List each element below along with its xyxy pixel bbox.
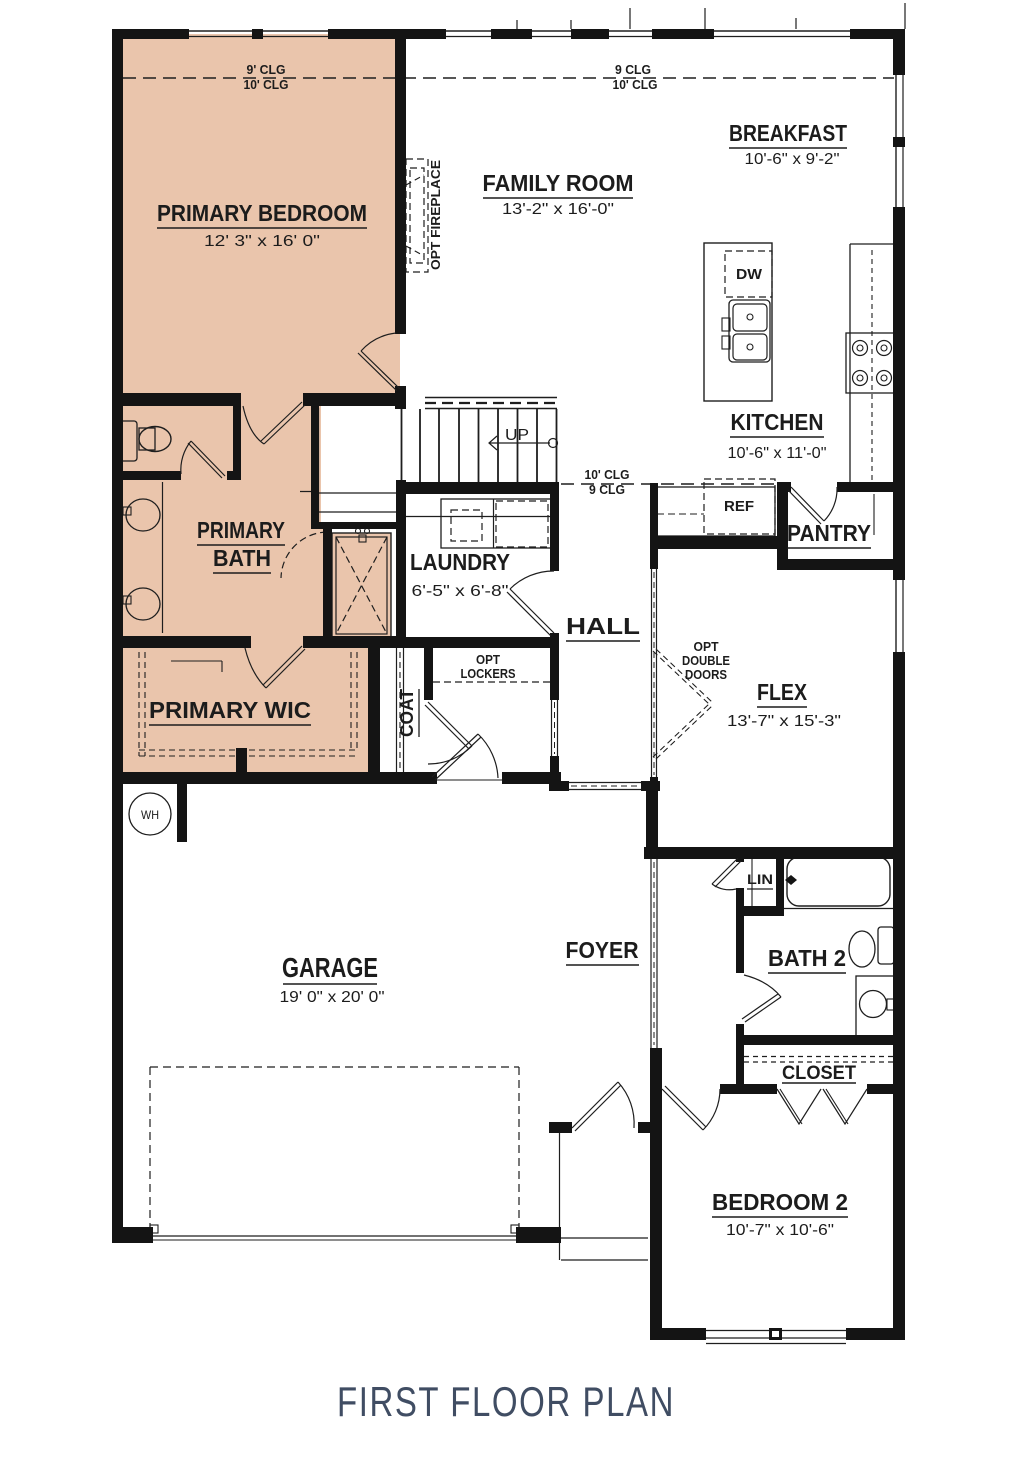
svg-text:FAMILY ROOM: FAMILY ROOM <box>483 170 634 196</box>
svg-text:COAT: COAT <box>397 689 417 737</box>
svg-text:HALL: HALL <box>566 613 640 639</box>
svg-text:10' CLG: 10' CLG <box>585 468 630 482</box>
svg-text:BATH 2: BATH 2 <box>768 945 846 971</box>
svg-text:OPT: OPT <box>694 639 719 654</box>
svg-text:13'-7" x 15'-3": 13'-7" x 15'-3" <box>727 713 841 730</box>
svg-text:LAUNDRY: LAUNDRY <box>410 549 510 575</box>
svg-text:PRIMARY: PRIMARY <box>197 517 285 543</box>
svg-text:10'-7" x 10'-6": 10'-7" x 10'-6" <box>726 1222 834 1239</box>
svg-text:10' CLG: 10' CLG <box>244 78 289 92</box>
svg-text:FIRST FLOOR PLAN: FIRST FLOOR PLAN <box>337 1378 675 1425</box>
svg-text:10' CLG: 10' CLG <box>613 78 658 92</box>
svg-text:DOORS: DOORS <box>685 667 727 682</box>
svg-text:WH: WH <box>141 808 159 822</box>
svg-text:DW: DW <box>736 266 763 283</box>
svg-text:9 CLG: 9 CLG <box>589 483 625 497</box>
svg-text:GARAGE: GARAGE <box>282 952 378 983</box>
svg-text:BREAKFAST: BREAKFAST <box>729 120 847 146</box>
svg-text:9' CLG: 9' CLG <box>247 63 286 77</box>
svg-text:19' 0" x 20' 0": 19' 0" x 20' 0" <box>280 989 385 1006</box>
svg-text:OPT FIREPLACE: OPT FIREPLACE <box>429 160 443 270</box>
svg-text:FLEX: FLEX <box>757 679 808 705</box>
svg-text:FOYER: FOYER <box>566 937 639 963</box>
svg-text:12' 3" x 16' 0": 12' 3" x 16' 0" <box>204 233 320 250</box>
svg-text:10'-6" x 11'-0": 10'-6" x 11'-0" <box>728 445 827 462</box>
svg-text:LOCKERS: LOCKERS <box>461 666 516 681</box>
svg-text:6'-5" x 6'-8": 6'-5" x 6'-8" <box>412 583 509 600</box>
svg-text:BATH: BATH <box>213 545 271 571</box>
svg-text:13'-2" x 16'-0": 13'-2" x 16'-0" <box>502 201 614 218</box>
svg-text:UP: UP <box>505 427 529 444</box>
svg-text:DOUBLE: DOUBLE <box>682 653 730 668</box>
svg-text:KITCHEN: KITCHEN <box>731 409 824 435</box>
svg-text:OPT: OPT <box>476 652 500 667</box>
svg-text:9 CLG: 9 CLG <box>615 63 651 77</box>
svg-text:LIN: LIN <box>747 871 773 887</box>
svg-text:BEDROOM 2: BEDROOM 2 <box>712 1189 848 1215</box>
svg-text:REF: REF <box>724 498 754 515</box>
svg-text:PRIMARY WIC: PRIMARY WIC <box>149 697 311 723</box>
svg-text:CLOSET: CLOSET <box>782 1063 856 1084</box>
svg-text:10'-6" x 9'-2": 10'-6" x 9'-2" <box>745 151 840 168</box>
svg-text:PRIMARY BEDROOM: PRIMARY BEDROOM <box>157 200 367 226</box>
svg-text:PANTRY: PANTRY <box>787 520 871 546</box>
